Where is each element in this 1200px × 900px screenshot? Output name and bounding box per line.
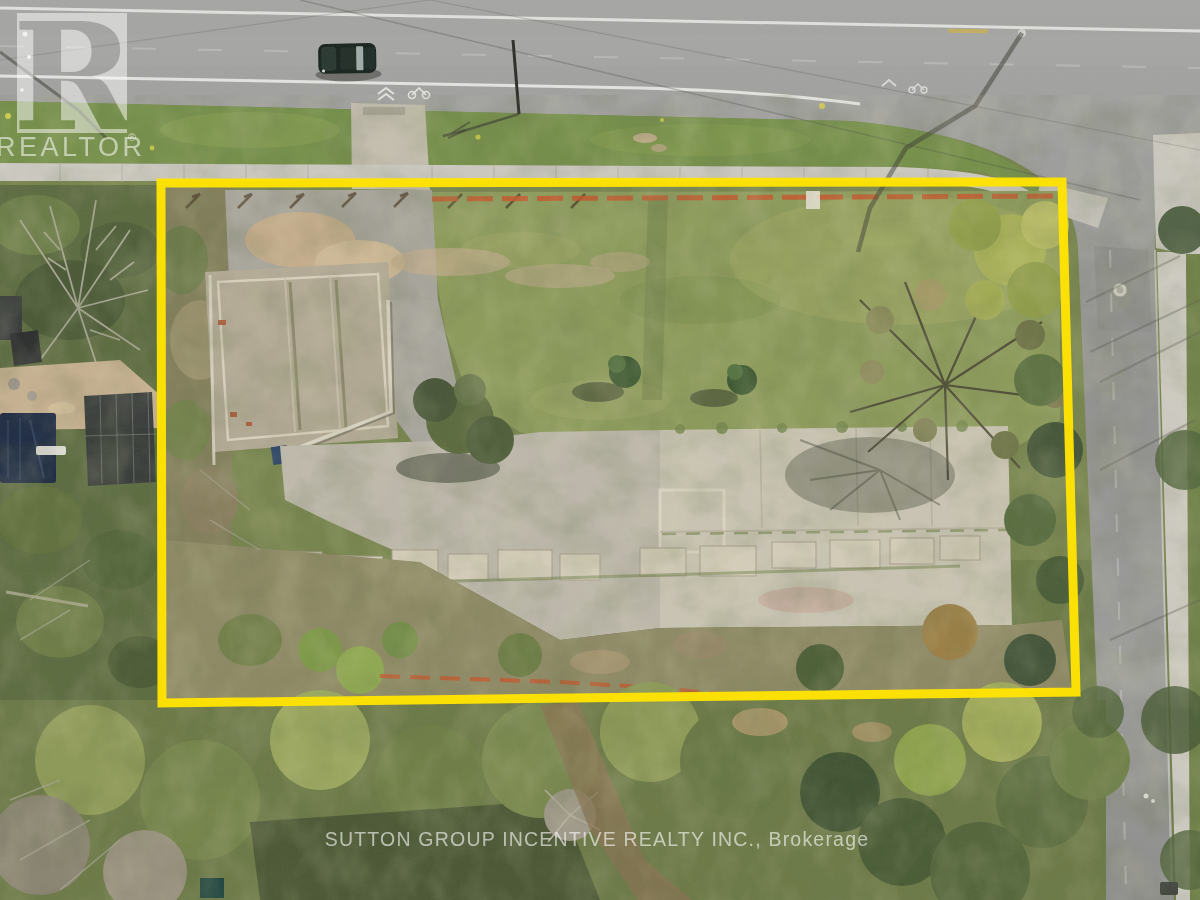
realtor-logo: REALTOR ® <box>0 13 146 162</box>
texture-overlays <box>0 0 1200 900</box>
aerial-lot-photo: R <box>0 0 1200 900</box>
brokerage-watermark: SUTTON GROUP INCENTIVE REALTY INC., Brok… <box>325 828 870 850</box>
registered-mark: ® <box>128 131 136 143</box>
realtor-logo-text: REALTOR <box>0 132 146 162</box>
